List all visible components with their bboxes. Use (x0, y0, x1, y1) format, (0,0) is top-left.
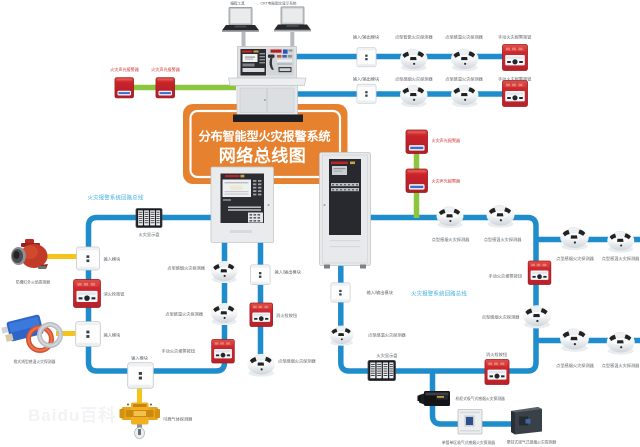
svg-text:输入模块: 输入模块 (104, 256, 122, 263)
svg-text:手动火灾报警按钮: 手动火灾报警按钮 (161, 348, 195, 355)
svg-text:手动火灾报警按钮: 手动火灾报警按钮 (488, 273, 522, 280)
svg-text:手动火灾报警按钮: 手动火灾报警按钮 (498, 34, 532, 41)
svg-text:点型感烟火灾探测器: 点型感烟火灾探测器 (556, 362, 595, 369)
svg-text:点型感温火灾探测器: 点型感温火灾探测器 (368, 332, 407, 339)
svg-text:输入/输出模块: 输入/输出模块 (367, 289, 394, 296)
svg-text:火灾声光报警器: 火灾声光报警器 (432, 178, 461, 184)
svg-text:输入模块: 输入模块 (131, 355, 149, 362)
svg-text:点型感温火灾探测器: 点型感温火灾探测器 (445, 34, 484, 41)
svg-text:点型感温火灾探测器: 点型感温火灾探测器 (165, 311, 204, 318)
svg-text:分布智能型火灾报警系统: 分布智能型火灾报警系统 (199, 129, 331, 144)
svg-text:CRT电脑图文显示系统: CRT电脑图文显示系统 (260, 1, 296, 6)
svg-text:防爆红外火焰探测器: 防爆红外火焰探测器 (16, 280, 50, 285)
svg-text:火灾显示盘: 火灾显示盘 (139, 231, 160, 238)
svg-text:消火栓按钮: 消火栓按钮 (486, 351, 507, 358)
svg-text:点型感温火灾探测器: 点型感温火灾探测器 (602, 362, 640, 369)
svg-text:输入模块: 输入模块 (104, 332, 122, 339)
svg-text:输入/输出模块: 输入/输出模块 (353, 76, 380, 83)
svg-text:火灾声光报警器: 火灾声光报警器 (151, 66, 180, 72)
svg-text:点型感烟火灾探测器: 点型感烟火灾探测器 (395, 76, 434, 83)
svg-text:缆式线型感温火灾探测器: 缆式线型感温火灾探测器 (14, 359, 56, 364)
svg-text:点型感温火灾探测器: 点型感温火灾探测器 (602, 255, 640, 262)
svg-text:火灾声光报警器: 火灾声光报警器 (110, 66, 139, 72)
svg-text:消火栓按钮: 消火栓按钮 (104, 291, 125, 298)
svg-text:点型感烟火灾探测器: 点型感烟火灾探测器 (278, 358, 317, 365)
svg-text:点型感烟火灾探测器: 点型感烟火灾探测器 (556, 255, 595, 262)
svg-text:输入/输出模块: 输入/输出模块 (275, 269, 302, 276)
svg-text:点型感烟火灾探测器: 点型感烟火灾探测器 (432, 236, 471, 243)
svg-text:单管单区吸气式感烟火灾探测器: 单管单区吸气式感烟火灾探测器 (442, 440, 495, 445)
svg-text:点型感温火灾探测器: 点型感温火灾探测器 (484, 236, 523, 243)
svg-text:消火栓按钮: 消火栓按钮 (276, 312, 297, 319)
svg-text:点型感温火灾探测器: 点型感温火灾探测器 (445, 76, 484, 83)
svg-text:点型智能火灾探测器: 点型智能火灾探测器 (395, 34, 434, 41)
svg-text:点型感烟火灾探测器: 点型感烟火灾探测器 (482, 314, 521, 321)
svg-text:Baidu百科: Baidu百科 (28, 405, 116, 425)
svg-text:火灾报警系统回路总线: 火灾报警系统回路总线 (88, 194, 144, 202)
svg-text:火灾显示盘: 火灾显示盘 (377, 352, 398, 359)
svg-text:机柜式吸气式感烟火灾探测器: 机柜式吸气式感烟火灾探测器 (456, 396, 506, 401)
svg-text:可燃气体探测器: 可燃气体探测器 (163, 416, 193, 423)
svg-text:壁挂式吸气式感烟火灾探测器: 壁挂式吸气式感烟火灾探测器 (507, 440, 557, 445)
svg-text:输入/输出模块: 输入/输出模块 (353, 34, 380, 41)
svg-text:火灾报警系统回路总线: 火灾报警系统回路总线 (411, 290, 467, 298)
svg-text:网络总线图: 网络总线图 (219, 146, 307, 166)
svg-text:火灾声光报警器: 火灾声光报警器 (432, 137, 461, 143)
svg-text:手动火灾报警按钮: 手动火灾报警按钮 (498, 76, 532, 83)
svg-text:编程工具: 编程工具 (230, 1, 245, 6)
svg-text:点型感烟火灾探测器: 点型感烟火灾探测器 (167, 265, 206, 272)
